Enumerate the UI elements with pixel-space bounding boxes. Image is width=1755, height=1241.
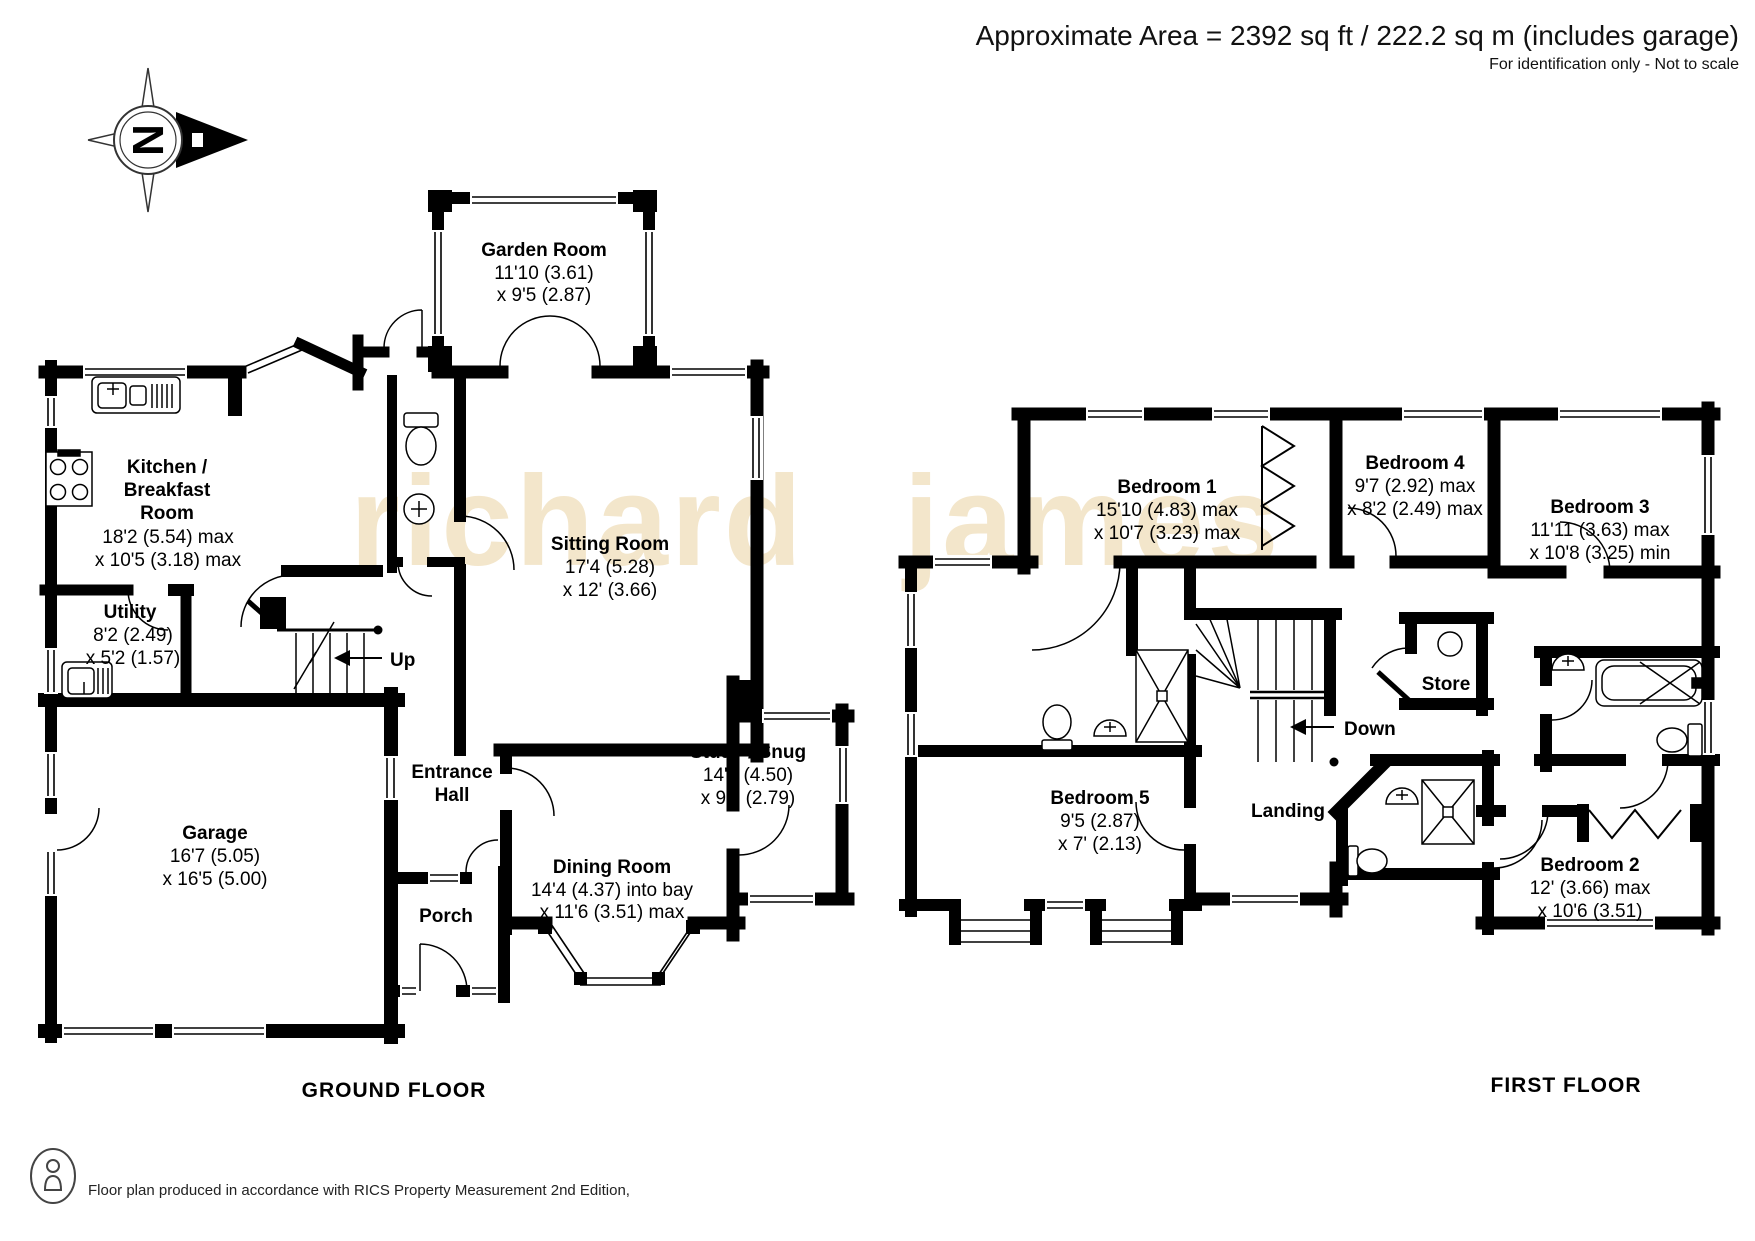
compass-north-arrow: [176, 112, 248, 168]
room-label-garage: Garage: [182, 823, 247, 844]
stairs-up-label: Up: [390, 650, 415, 671]
first-floor-title: FIRST FLOOR: [1491, 1074, 1642, 1097]
wc-basin: [404, 494, 434, 524]
approximate-area-text: Approximate Area = 2392 sq ft / 222.2 sq…: [976, 20, 1739, 52]
room-dim: x 10'7 (3.23) max: [1094, 523, 1241, 544]
floorplan-page: Approximate Area = 2392 sq ft / 222.2 sq…: [0, 0, 1755, 1241]
ensuite-shower: [1136, 650, 1188, 742]
shower-room-shower: [1422, 780, 1474, 844]
compass-letter: N: [123, 124, 172, 156]
svg-text:Room: Room: [140, 503, 194, 524]
ground-floor-plan: Garden Room 11'10 (3.61) x 9'5 (2.87) Ki…: [44, 190, 849, 1102]
room-dim: 15'10 (4.83) max: [1096, 500, 1238, 521]
compass-arrow-notch: [192, 133, 203, 147]
ground-floor-title: GROUND FLOOR: [302, 1079, 487, 1102]
room-dim: 14'4 (4.37) into bay: [531, 880, 694, 901]
room-dim: x 10'5 (3.18) max: [95, 550, 242, 571]
room-dim: 18'2 (5.54) max: [102, 527, 234, 548]
kitchen-sink: [92, 377, 180, 413]
room-label-garden: Garden Room: [481, 240, 607, 261]
room-dim: 8'2 (2.49): [93, 625, 173, 646]
room-label-entrance-hall: Entrance: [411, 762, 492, 783]
room-dim: x 11'6 (3.51) max: [540, 902, 685, 923]
room-label-bed3: Bedroom 3: [1550, 497, 1649, 518]
gf-stairs-up: [277, 622, 383, 696]
room-dim: 17'4 (5.28): [565, 557, 655, 578]
room-label-kitchen: Kitchen /: [127, 457, 208, 478]
room-label-utility: Utility: [104, 602, 157, 623]
nichecom-logo-icon: [28, 1146, 78, 1206]
bathroom-toilet: [1657, 724, 1702, 756]
footer-line-1: Floor plan produced in accordance with R…: [88, 1181, 768, 1200]
room-dim: x 7' (2.13): [1058, 834, 1142, 855]
room-label-store: Store: [1422, 674, 1471, 695]
room-dim: x 9'5 (2.87): [497, 285, 591, 306]
gf-bay-window: [545, 924, 696, 985]
ff-walls: [905, 408, 1714, 929]
identification-note: For identification only - Not to scale: [1489, 56, 1739, 74]
first-floor-plan: Bedroom 1 15'10 (4.83) max x 10'7 (3.23)…: [904, 406, 1715, 1097]
room-dim: x 9'2 (2.79): [701, 788, 795, 809]
room-dim: 11'10 (3.61): [494, 263, 593, 284]
ensuite-basin: [1094, 720, 1126, 736]
room-dim: x 8'2 (2.49) max: [1347, 499, 1483, 520]
room-label-landing: Landing: [1251, 801, 1325, 822]
ensuite-toilet: [1042, 705, 1072, 750]
shower-room-basin: [1386, 788, 1418, 804]
room-label-sitting: Sitting Room: [551, 534, 669, 555]
room-label-bed2: Bedroom 2: [1540, 855, 1639, 876]
room-dim: x 5'2 (1.57): [86, 648, 180, 669]
ff-stairs-down: [1196, 612, 1339, 767]
up-arrow-icon: [334, 650, 350, 666]
compass-icon: N: [88, 68, 248, 212]
room-dim: 12' (3.66) max: [1530, 878, 1651, 899]
stairs-down-label: Down: [1344, 719, 1396, 740]
room-label-study: Study / Snug: [690, 742, 806, 763]
footer-disclaimer: Floor plan produced in accordance with R…: [88, 1143, 768, 1241]
room-dim: 9'7 (2.92) max: [1355, 476, 1476, 497]
store-tank: [1438, 632, 1462, 656]
svg-text:Breakfast: Breakfast: [124, 480, 211, 501]
room-dim: x 12' (3.66): [563, 580, 657, 601]
room-dim: 16'7 (5.05): [170, 846, 260, 867]
bathroom-bath: [1596, 660, 1702, 706]
floorplan-drawing: N: [0, 0, 1755, 1241]
room-label-bed1: Bedroom 1: [1117, 477, 1217, 498]
wc-toilet: [404, 413, 438, 465]
room-dim: 11'11 (3.63) max: [1530, 520, 1670, 541]
room-dim: 9'5 (2.87): [1060, 811, 1140, 832]
store-door-leaf: [1378, 672, 1411, 702]
room-dim: x 16'5 (5.00): [162, 869, 267, 890]
kitchen-hob: [46, 450, 92, 506]
room-label-dining: Dining Room: [553, 857, 671, 878]
room-dim: x 10'6 (3.51): [1537, 901, 1642, 922]
room-dim: x 10'8 (3.25) min: [1530, 543, 1671, 564]
room-label-bed5: Bedroom 5: [1050, 788, 1150, 809]
svg-text:Hall: Hall: [435, 785, 470, 806]
room-dim: 14'9 (4.50): [703, 765, 793, 786]
down-arrow-icon: [1290, 719, 1306, 735]
room-label-bed4: Bedroom 4: [1365, 453, 1465, 474]
room-label-porch: Porch: [419, 906, 473, 927]
